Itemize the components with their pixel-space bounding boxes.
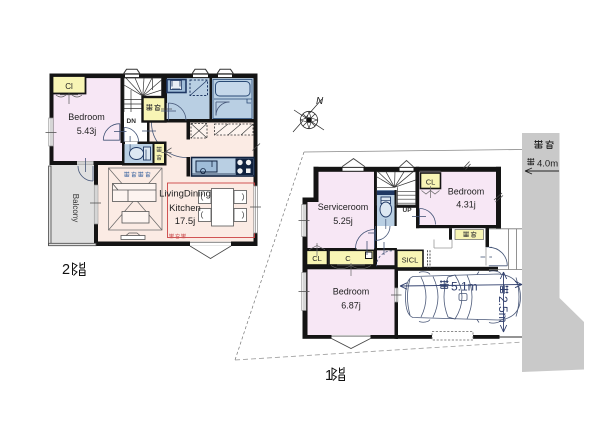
svg-text:2.5m: 2.5m <box>496 296 510 323</box>
svg-text:5.25j: 5.25j <box>333 216 353 226</box>
svg-text:LivingDining: LivingDining <box>159 189 211 200</box>
svg-text:C: C <box>345 254 351 263</box>
svg-text:N: N <box>316 96 324 107</box>
svg-text:Balcony: Balcony <box>71 194 80 222</box>
svg-text:4.0m: 4.0m <box>537 159 558 170</box>
svg-text:2: 2 <box>62 262 70 278</box>
svg-text:Bedroom: Bedroom <box>68 112 105 122</box>
svg-text:6.87j: 6.87j <box>341 301 361 311</box>
svg-text:UP: UP <box>403 207 413 214</box>
svg-text:Cl: Cl <box>65 82 73 91</box>
svg-text:CL: CL <box>426 178 436 187</box>
svg-text:Bedroom: Bedroom <box>448 187 485 197</box>
svg-text:Serviceroom: Serviceroom <box>318 202 369 212</box>
svg-text:4.31j: 4.31j <box>456 200 476 210</box>
svg-text:5.43j: 5.43j <box>77 126 97 136</box>
svg-text:17.5j: 17.5j <box>175 216 196 227</box>
svg-text:SICL: SICL <box>402 256 419 265</box>
svg-text:5.1m: 5.1m <box>451 280 478 294</box>
svg-text:Kitchen: Kitchen <box>169 203 201 214</box>
svg-text:DN: DN <box>127 118 137 125</box>
svg-text:Bedroom: Bedroom <box>333 287 370 297</box>
